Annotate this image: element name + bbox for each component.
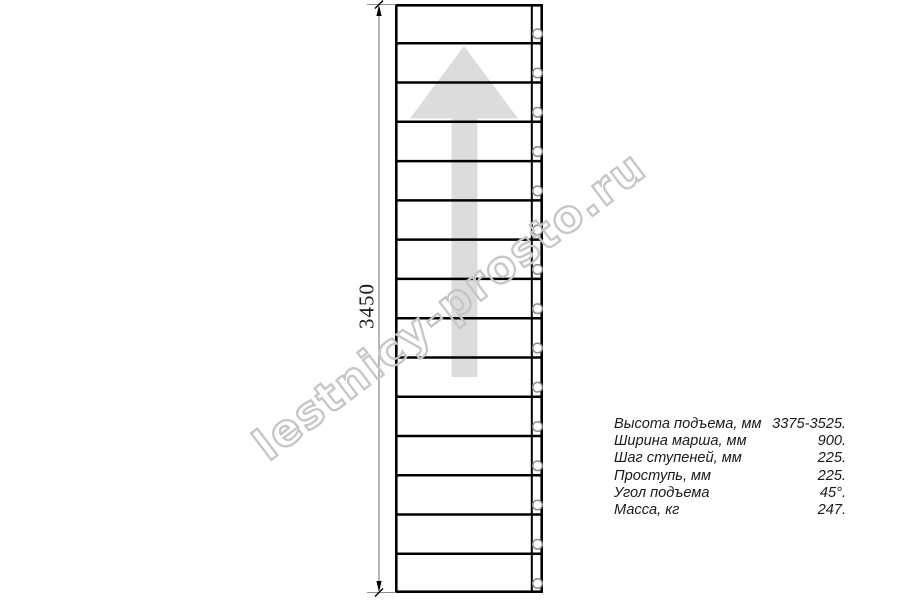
baluster-icon (533, 304, 543, 314)
baluster-icon (533, 343, 543, 353)
spec-row: Ширина марша, мм 900. (614, 433, 846, 450)
spec-row: Угол подъема 45°. (614, 485, 846, 502)
baluster-icon (533, 186, 543, 196)
spec-label: Шаг ступеней, мм (614, 450, 742, 467)
baluster-icon (533, 461, 543, 471)
baluster-icon (533, 382, 543, 392)
spec-row: Масса, кг 247. (614, 502, 846, 519)
spec-row: Шаг ступеней, мм 225. (614, 450, 846, 467)
direction-arrow-icon (410, 46, 518, 377)
baluster-icon (533, 29, 543, 39)
spec-label: Проступь, мм (614, 468, 711, 485)
spec-value: 247. (818, 502, 846, 519)
technical-drawing-page: 3450 lestnicy-prosto.ru Высота подъема, … (0, 0, 900, 600)
spec-value: 225. (818, 468, 846, 485)
baluster-icon (533, 500, 543, 510)
spec-row: Проступь, мм 225. (614, 468, 846, 485)
spec-label: Масса, кг (614, 502, 679, 519)
spec-value: 45°. (820, 485, 846, 502)
spec-label: Угол подъема (614, 485, 709, 502)
spec-row: Высота подъема, мм 3375-3525. (614, 416, 846, 433)
baluster-icon (533, 540, 543, 550)
specs-table: Высота подъема, мм 3375-3525. Ширина мар… (614, 416, 846, 519)
baluster-icon (533, 265, 543, 275)
balusters-group (533, 29, 543, 588)
spec-value: 900. (818, 433, 846, 450)
baluster-icon (533, 422, 543, 432)
spec-label: Ширина марша, мм (614, 433, 747, 450)
baluster-icon (533, 68, 543, 78)
baluster-icon (533, 579, 543, 589)
dimension-value: 3450 (355, 283, 380, 329)
spec-value: 3375-3525. (772, 416, 846, 433)
spec-value: 225. (818, 450, 846, 467)
baluster-icon (533, 108, 543, 118)
baluster-icon (533, 225, 543, 235)
spec-label: Высота подъема, мм (614, 416, 762, 433)
baluster-icon (533, 147, 543, 157)
